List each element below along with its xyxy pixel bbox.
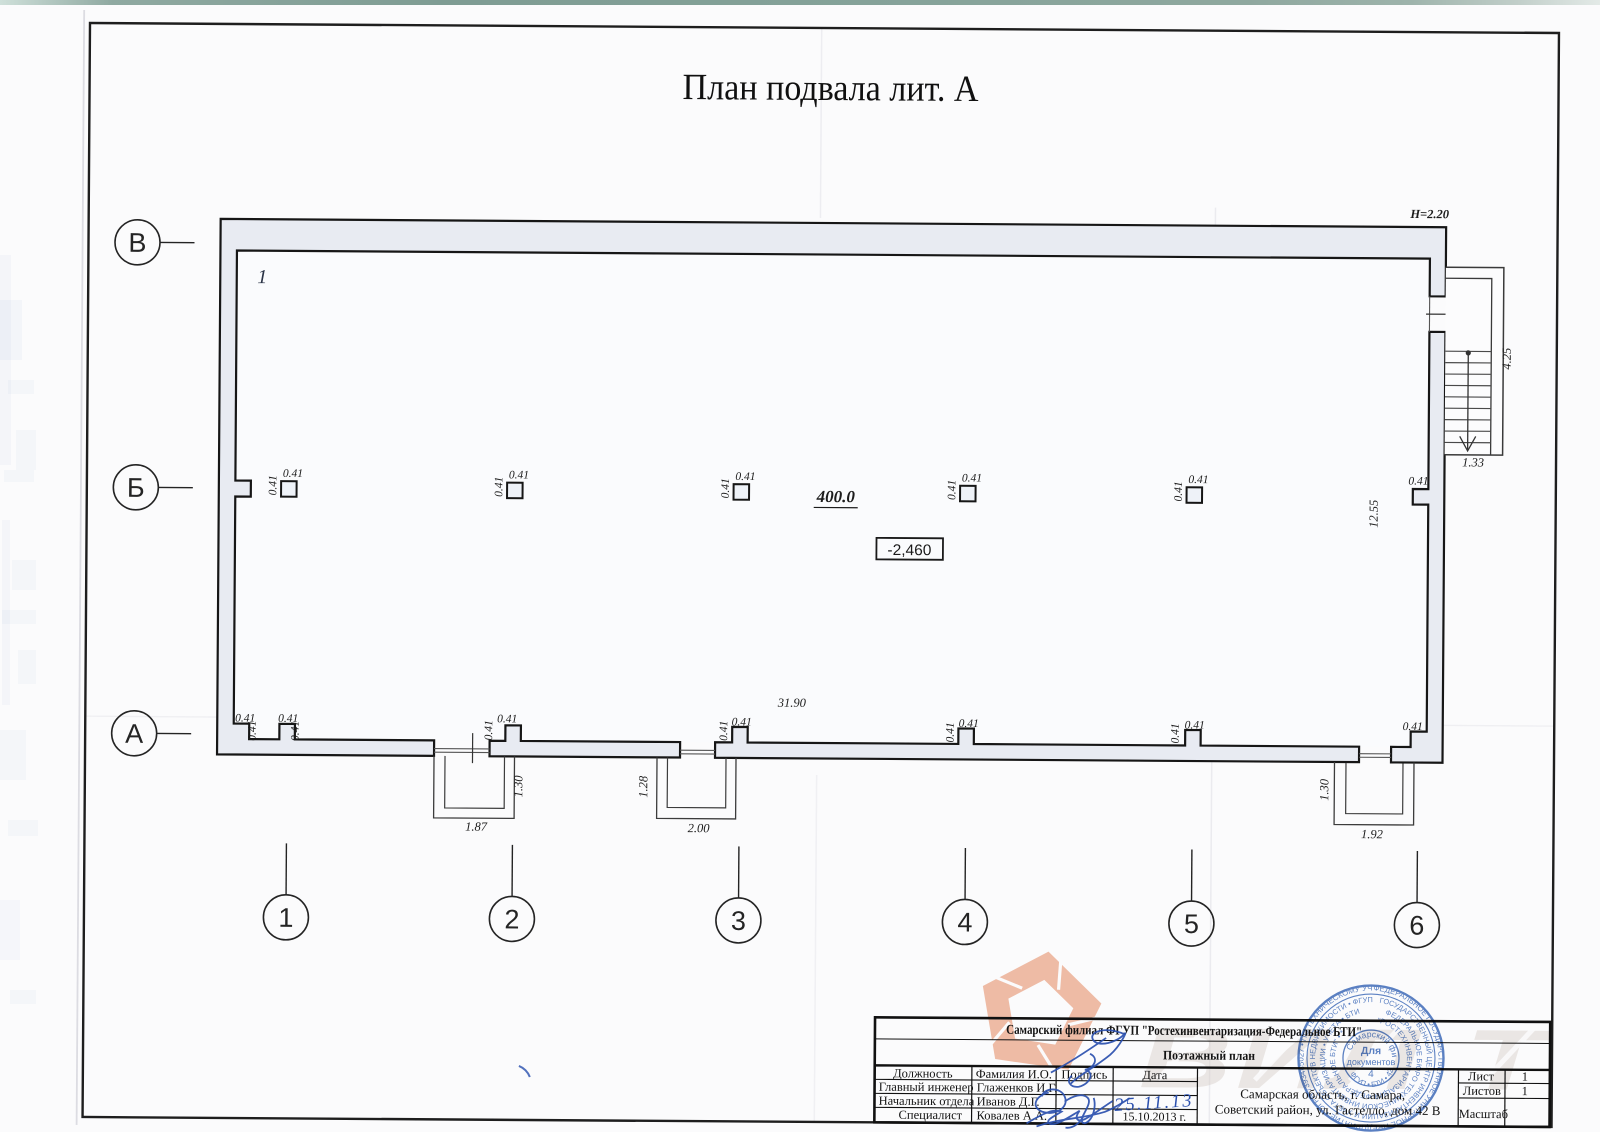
- svg-text:Начальник отдела: Начальник отдела: [879, 1094, 975, 1109]
- svg-text:1.30: 1.30: [511, 775, 525, 798]
- svg-text:1.30: 1.30: [1317, 778, 1331, 801]
- svg-text:0.41: 0.41: [1173, 481, 1185, 501]
- svg-text:Специалист: Специалист: [899, 1108, 963, 1122]
- svg-text:0.41: 0.41: [290, 721, 302, 741]
- svg-text:3: 3: [731, 906, 746, 936]
- svg-text:6: 6: [1409, 911, 1424, 941]
- svg-text:Для: Для: [1361, 1045, 1381, 1057]
- svg-text:Б: Б: [127, 473, 145, 503]
- svg-text:0.41: 0.41: [946, 480, 958, 500]
- svg-text:документов: документов: [1347, 1057, 1396, 1067]
- svg-text:В: В: [128, 228, 146, 258]
- svg-text:0.41: 0.41: [483, 720, 495, 740]
- svg-text:Дата: Дата: [1142, 1068, 1167, 1082]
- svg-text:1: 1: [278, 903, 293, 933]
- svg-text:0.41: 0.41: [720, 478, 732, 498]
- svg-text:1.92: 1.92: [1361, 827, 1383, 841]
- svg-text:План подвала лит. А: План подвала лит. А: [682, 67, 979, 110]
- svg-text:Иванов Д.Г.: Иванов Д.Г.: [977, 1094, 1040, 1108]
- svg-text:Лист: Лист: [1468, 1069, 1495, 1083]
- svg-text:Листов: Листов: [1463, 1084, 1501, 1098]
- svg-text:0.41: 0.41: [732, 716, 752, 728]
- svg-text:12.55: 12.55: [1367, 500, 1381, 528]
- svg-text:Н=2.20: Н=2.20: [1409, 207, 1450, 221]
- svg-text:1.28: 1.28: [636, 775, 650, 798]
- svg-text:5: 5: [1184, 909, 1199, 939]
- svg-text:0.41: 0.41: [1170, 723, 1182, 743]
- svg-text:1: 1: [1522, 1084, 1528, 1098]
- svg-text:0.41: 0.41: [283, 468, 303, 480]
- svg-text:1: 1: [257, 266, 267, 288]
- svg-text:0.41: 0.41: [509, 469, 529, 481]
- svg-text:1: 1: [1522, 1070, 1528, 1084]
- svg-text:4.25: 4.25: [1500, 348, 1514, 370]
- svg-text:0.41: 0.41: [497, 713, 517, 725]
- svg-text:0.41: 0.41: [493, 477, 505, 497]
- svg-text:Ковалев А.А.: Ковалев А.А.: [977, 1108, 1048, 1122]
- svg-text:0.41: 0.41: [959, 718, 979, 730]
- svg-text:Поэтажный план: Поэтажный план: [1163, 1047, 1256, 1063]
- svg-text:2: 2: [504, 904, 519, 934]
- svg-text:0.41: 0.41: [1185, 719, 1205, 731]
- svg-text:2.00: 2.00: [688, 821, 711, 835]
- svg-text:400.0: 400.0: [816, 487, 856, 506]
- svg-text:А: А: [125, 719, 143, 749]
- svg-text:0.41: 0.41: [1403, 721, 1423, 733]
- svg-text:Фамилия И.О.: Фамилия И.О.: [976, 1067, 1052, 1082]
- svg-text:1.87: 1.87: [465, 820, 488, 834]
- svg-text:Главный инженер: Главный инженер: [879, 1080, 974, 1095]
- svg-text:4: 4: [957, 907, 972, 937]
- svg-text:Масштаб: Масштаб: [1459, 1107, 1508, 1121]
- svg-text:Должность: Должность: [893, 1066, 953, 1080]
- svg-text:0.41: 0.41: [247, 721, 259, 741]
- svg-text:0.41: 0.41: [945, 722, 957, 742]
- svg-text:0.41: 0.41: [718, 721, 730, 741]
- svg-text:0.41: 0.41: [1408, 475, 1428, 487]
- svg-text:0.41: 0.41: [267, 475, 279, 495]
- svg-text:31.90: 31.90: [777, 696, 807, 710]
- svg-text:0.41: 0.41: [1188, 474, 1208, 486]
- svg-text:-2,460: -2,460: [887, 542, 931, 559]
- svg-text:0.41: 0.41: [962, 472, 982, 484]
- svg-text:1.33: 1.33: [1462, 455, 1484, 469]
- svg-text:4: 4: [1368, 1069, 1374, 1080]
- svg-text:0.41: 0.41: [735, 471, 755, 483]
